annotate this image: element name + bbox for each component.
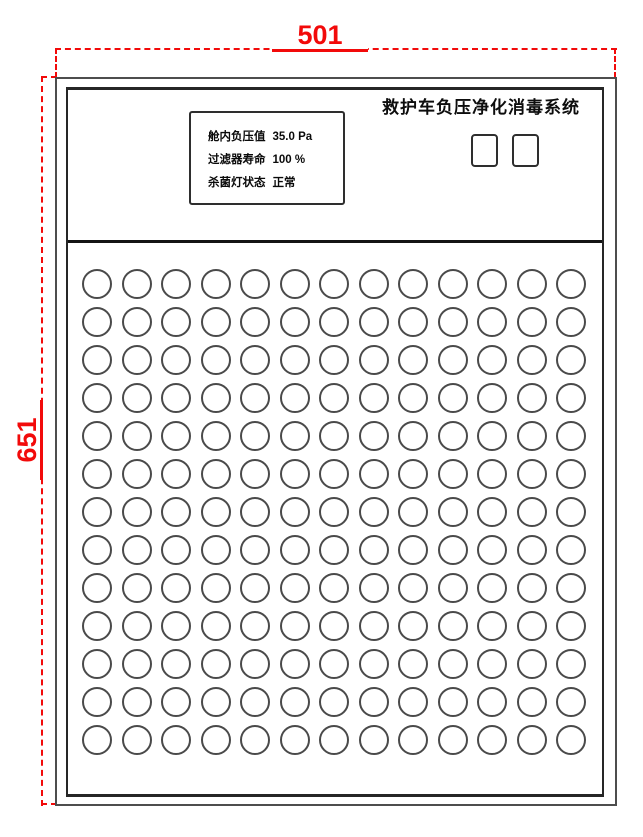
vent-hole (280, 459, 310, 489)
vent-hole (240, 611, 270, 641)
vent-hole (517, 687, 547, 717)
vent-hole (556, 383, 586, 413)
vent-hole (477, 611, 507, 641)
vent-hole (398, 497, 428, 527)
vent-hole (161, 383, 191, 413)
vent-hole (201, 497, 231, 527)
filter-life-value: 100 % (273, 154, 306, 166)
vent-row (82, 725, 586, 755)
vent-hole (438, 611, 468, 641)
vent-hole (477, 345, 507, 375)
vent-hole (82, 459, 112, 489)
vent-hole (82, 421, 112, 451)
vent-hole (201, 725, 231, 755)
vent-hole (517, 307, 547, 337)
vent-hole (280, 573, 310, 603)
vent-hole (438, 307, 468, 337)
vent-hole (319, 725, 349, 755)
vent-hole (359, 459, 389, 489)
vent-hole (82, 307, 112, 337)
vent-hole (201, 573, 231, 603)
vent-hole (359, 269, 389, 299)
vent-hole (398, 307, 428, 337)
vent-hole (122, 611, 152, 641)
vent-hole (319, 269, 349, 299)
vent-hole (240, 649, 270, 679)
panel-button-left[interactable] (471, 134, 498, 167)
vent-hole (201, 649, 231, 679)
system-title: 救护车负压净化消毒系统 (355, 93, 607, 118)
width-dimension-tick-left (55, 48, 57, 78)
vent-hole (122, 269, 152, 299)
vent-hole (319, 611, 349, 641)
vent-hole (82, 269, 112, 299)
vent-hole (240, 535, 270, 565)
display-line-pressure: 舱内负压值35.0 Pa (208, 126, 343, 149)
height-dimension-label: 651 (13, 400, 43, 480)
vent-hole (359, 611, 389, 641)
vent-hole (556, 611, 586, 641)
vent-hole (359, 687, 389, 717)
vent-hole (122, 687, 152, 717)
vent-hole (477, 649, 507, 679)
vent-hole (240, 497, 270, 527)
vent-hole (201, 421, 231, 451)
vent-hole (398, 573, 428, 603)
vent-hole (122, 649, 152, 679)
lamp-status-value: 正常 (273, 177, 296, 189)
vent-hole (359, 383, 389, 413)
vent-hole (359, 345, 389, 375)
vent-hole (359, 573, 389, 603)
vent-hole (477, 535, 507, 565)
vent-hole (161, 307, 191, 337)
vent-hole (477, 573, 507, 603)
vent-hole (82, 383, 112, 413)
vent-hole (517, 611, 547, 641)
vent-hole (280, 687, 310, 717)
vent-hole (161, 497, 191, 527)
vent-hole (122, 535, 152, 565)
vent-hole (82, 497, 112, 527)
vent-hole (240, 459, 270, 489)
vent-hole (517, 383, 547, 413)
vent-hole (161, 573, 191, 603)
button-row (471, 134, 539, 167)
vent-hole (556, 725, 586, 755)
vent-hole (201, 383, 231, 413)
vent-hole (161, 459, 191, 489)
vent-row (82, 535, 586, 565)
vent-hole (359, 725, 389, 755)
vent-hole (438, 687, 468, 717)
vent-hole (280, 611, 310, 641)
vent-hole (517, 459, 547, 489)
display-line-lamp: 杀菌灯状态正常 (208, 172, 343, 195)
vent-row (82, 497, 586, 527)
vent-hole (161, 649, 191, 679)
vent-hole (477, 421, 507, 451)
vent-hole (477, 687, 507, 717)
vent-hole (122, 573, 152, 603)
vent-hole (319, 345, 349, 375)
vent-hole (122, 459, 152, 489)
status-display: 舱内负压值35.0 Pa 过滤器寿命100 % 杀菌灯状态正常 (189, 111, 345, 205)
vent-hole (161, 345, 191, 375)
vent-hole (438, 421, 468, 451)
vent-hole (122, 497, 152, 527)
vent-hole (280, 497, 310, 527)
vent-hole (280, 421, 310, 451)
vent-hole (240, 345, 270, 375)
vent-hole (359, 421, 389, 451)
vent-hole (319, 307, 349, 337)
vent-row (82, 307, 586, 337)
vent-row (82, 611, 586, 641)
vent-hole (438, 497, 468, 527)
vent-hole (556, 497, 586, 527)
vent-hole (359, 497, 389, 527)
vent-hole (280, 383, 310, 413)
vent-hole (359, 535, 389, 565)
vent-row (82, 345, 586, 375)
width-dimension-tick-right (614, 48, 616, 78)
vent-hole (438, 573, 468, 603)
vent-hole (240, 269, 270, 299)
vent-hole (122, 345, 152, 375)
vent-hole (161, 725, 191, 755)
vent-hole (161, 611, 191, 641)
vent-hole (240, 307, 270, 337)
vent-hole (280, 269, 310, 299)
width-dimension-label: 501 (272, 21, 368, 52)
display-line-filter: 过滤器寿命100 % (208, 149, 343, 172)
vent-hole (161, 535, 191, 565)
vent-hole (398, 269, 428, 299)
vent-hole (122, 383, 152, 413)
vent-grid (68, 243, 602, 795)
vent-hole (82, 725, 112, 755)
vent-hole (556, 269, 586, 299)
vent-hole (319, 497, 349, 527)
pressure-value: 35.0 Pa (273, 131, 313, 143)
vent-hole (398, 687, 428, 717)
vent-hole (438, 649, 468, 679)
vent-row (82, 459, 586, 489)
vent-hole (82, 535, 112, 565)
vent-hole (240, 383, 270, 413)
vent-hole (517, 725, 547, 755)
vent-hole (517, 497, 547, 527)
vent-hole (161, 269, 191, 299)
panel-button-right[interactable] (512, 134, 539, 167)
vent-hole (82, 573, 112, 603)
vent-hole (280, 725, 310, 755)
vent-hole (122, 307, 152, 337)
vent-hole (438, 269, 468, 299)
vent-hole (556, 421, 586, 451)
vent-hole (438, 535, 468, 565)
vent-hole (82, 611, 112, 641)
vent-hole (398, 535, 428, 565)
vent-hole (82, 649, 112, 679)
vent-hole (240, 421, 270, 451)
vent-hole (556, 573, 586, 603)
vent-hole (240, 687, 270, 717)
vent-hole (280, 535, 310, 565)
vent-hole (319, 383, 349, 413)
vent-row (82, 421, 586, 451)
vent-hole (477, 725, 507, 755)
vent-hole (398, 611, 428, 641)
vent-hole (438, 383, 468, 413)
technical-drawing-canvas: 501 651 救护车负压净化消毒系统 舱内负压值35.0 Pa 过滤器寿命10… (0, 0, 643, 837)
vent-hole (477, 307, 507, 337)
vent-hole (240, 573, 270, 603)
vent-hole (438, 345, 468, 375)
vent-row (82, 269, 586, 299)
vent-hole (319, 535, 349, 565)
vent-hole (319, 649, 349, 679)
vent-hole (517, 269, 547, 299)
vent-hole (438, 725, 468, 755)
vent-hole (280, 345, 310, 375)
vent-row (82, 649, 586, 679)
vent-hole (201, 459, 231, 489)
vent-hole (161, 421, 191, 451)
vent-hole (556, 307, 586, 337)
vent-hole (556, 345, 586, 375)
vent-row (82, 573, 586, 603)
lamp-status-label: 杀菌灯状态 (208, 177, 266, 189)
vent-hole (477, 459, 507, 489)
vent-hole (122, 421, 152, 451)
vent-hole (359, 649, 389, 679)
vent-hole (240, 725, 270, 755)
vent-hole (556, 649, 586, 679)
vent-hole (280, 649, 310, 679)
vent-hole (201, 687, 231, 717)
vent-hole (280, 307, 310, 337)
vent-hole (556, 459, 586, 489)
vent-hole (438, 459, 468, 489)
vent-hole (122, 725, 152, 755)
vent-hole (398, 459, 428, 489)
vent-hole (556, 687, 586, 717)
vent-hole (517, 421, 547, 451)
vent-row (82, 383, 586, 413)
vent-hole (398, 725, 428, 755)
vent-hole (517, 649, 547, 679)
vent-hole (398, 383, 428, 413)
vent-hole (477, 497, 507, 527)
vent-hole (82, 687, 112, 717)
vent-hole (477, 383, 507, 413)
vent-hole (161, 687, 191, 717)
vent-hole (319, 573, 349, 603)
vent-hole (319, 459, 349, 489)
vent-hole (319, 687, 349, 717)
vent-hole (82, 345, 112, 375)
vent-hole (359, 307, 389, 337)
vent-hole (477, 269, 507, 299)
vent-hole (201, 345, 231, 375)
vent-hole (201, 307, 231, 337)
vent-hole (201, 535, 231, 565)
vent-hole (556, 535, 586, 565)
vent-row (82, 687, 586, 717)
vent-hole (398, 421, 428, 451)
vent-hole (201, 269, 231, 299)
filter-life-label: 过滤器寿命 (208, 154, 266, 166)
vent-hole (319, 421, 349, 451)
vent-hole (517, 573, 547, 603)
pressure-label: 舱内负压值 (208, 131, 266, 143)
vent-hole (517, 345, 547, 375)
vent-hole (398, 649, 428, 679)
vent-hole (398, 345, 428, 375)
vent-hole (201, 611, 231, 641)
vent-hole (517, 535, 547, 565)
